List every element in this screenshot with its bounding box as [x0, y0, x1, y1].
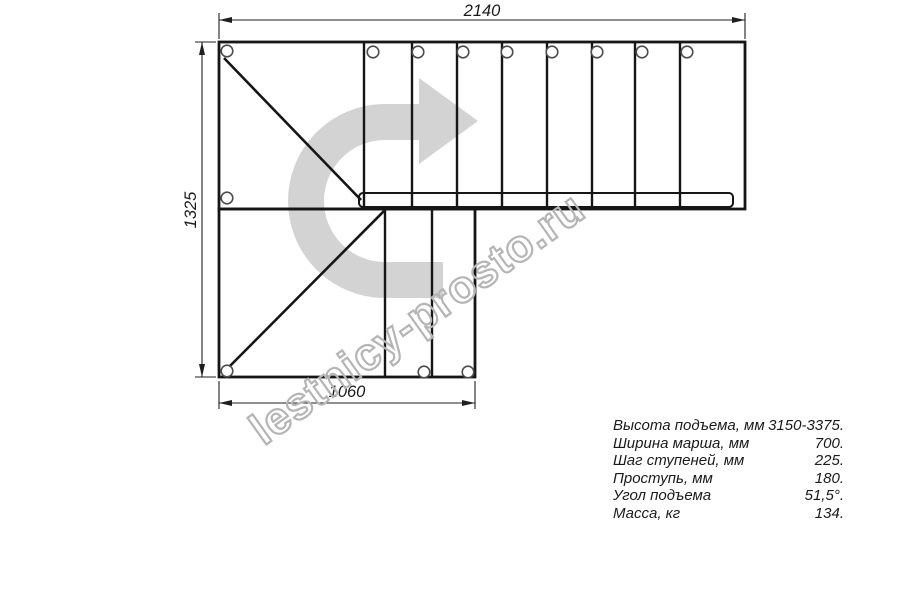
spec-row-angle: Угол подъема 51,5°.: [613, 487, 844, 505]
dim-arrow-left: [219, 400, 232, 406]
dim-arrow-up: [199, 42, 205, 55]
mounting-hole: [221, 365, 233, 377]
spec-label: Высота подъема, мм: [613, 417, 765, 435]
spec-value: 225.: [815, 452, 844, 470]
dimension-bottom-label: 1060: [329, 383, 367, 401]
spec-value: 134.: [815, 505, 844, 523]
spec-value: 3150-3375.: [768, 417, 844, 435]
mounting-hole: [457, 46, 469, 58]
dimension-left-label: 1325: [182, 191, 200, 229]
spec-label: Ширина марша, мм: [613, 435, 749, 453]
mounting-hole: [462, 366, 474, 378]
dim-arrow-right: [462, 400, 475, 406]
mounting-hole: [367, 46, 379, 58]
mounting-hole: [546, 46, 558, 58]
spec-value: 51,5°.: [805, 487, 844, 505]
spec-label: Проступь, мм: [613, 470, 713, 488]
spec-table: Высота подъема, мм 3150-3375. Ширина мар…: [613, 417, 844, 522]
spec-label: Угол подъема: [613, 487, 711, 505]
stair-plan-drawing: 2140 1325 1060 Высота подъема, мм 3150-3…: [0, 0, 900, 600]
spec-value: 180.: [815, 470, 844, 488]
dim-arrow-down: [199, 364, 205, 377]
mounting-hole: [418, 366, 430, 378]
mounting-hole: [412, 46, 424, 58]
direction-arrowhead: [419, 78, 478, 164]
mounting-hole: [501, 46, 513, 58]
dim-arrow-left: [219, 17, 232, 23]
dim-arrow-right: [732, 17, 745, 23]
spec-row-mass: Масса, кг 134.: [613, 505, 844, 523]
spec-row-step-pitch: Шаг ступеней, мм 225.: [613, 452, 844, 470]
spec-label: Шаг ступеней, мм: [613, 452, 744, 470]
mounting-hole: [221, 192, 233, 204]
dimension-top-label: 2140: [463, 2, 502, 20]
mounting-hole: [681, 46, 693, 58]
spec-row-tread: Проступь, мм 180.: [613, 470, 844, 488]
mounting-hole: [591, 46, 603, 58]
mounting-hole: [636, 46, 648, 58]
spec-label: Масса, кг: [613, 505, 680, 523]
direction-arrow-icon: [306, 78, 478, 280]
spec-value: 700.: [815, 435, 844, 453]
spec-row-height: Высота подъема, мм 3150-3375.: [613, 417, 844, 435]
mounting-hole: [221, 45, 233, 57]
upper-tread-lines: [364, 42, 680, 209]
stair-structure: [219, 42, 745, 377]
spec-row-flight-width: Ширина марша, мм 700.: [613, 435, 844, 453]
